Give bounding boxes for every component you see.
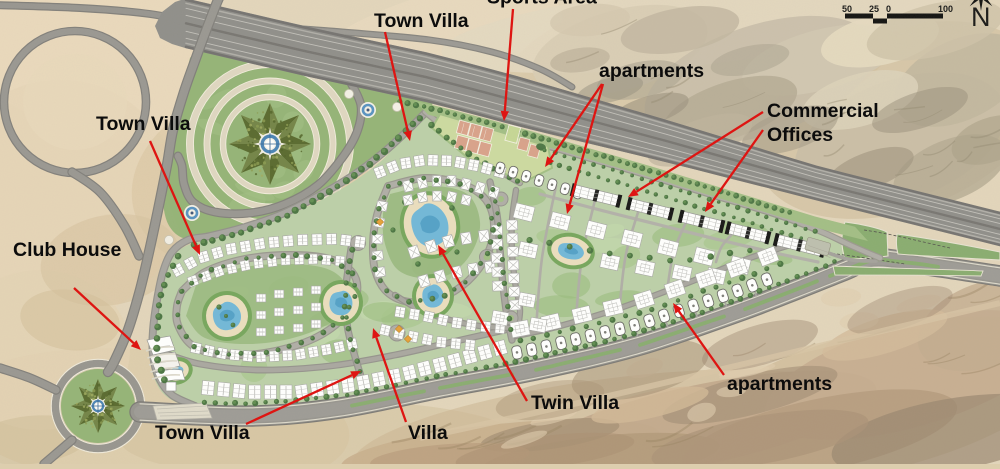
svg-text:apartments: apartments [599,60,704,82]
svg-text:Sports Area: Sports Area [487,0,597,9]
svg-text:Twin Villa: Twin Villa [531,392,619,414]
svg-text:Club House: Club House [13,239,121,261]
svg-text:Town Villa: Town Villa [96,113,191,135]
svg-text:apartments: apartments [727,373,832,395]
svg-text:Town Villa: Town Villa [155,422,250,444]
svg-text:Commercial: Commercial [767,100,879,122]
svg-text:Offices: Offices [767,124,833,146]
svg-text:Town Villa: Town Villa [374,10,469,32]
svg-text:Villa: Villa [408,422,448,444]
